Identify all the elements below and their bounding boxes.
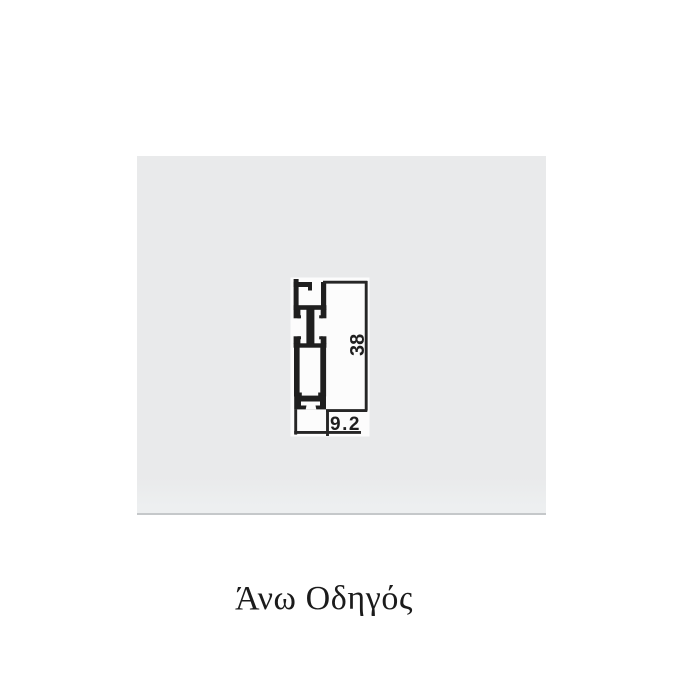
svg-text:9.2: 9.2: [330, 414, 361, 435]
svg-text:38: 38: [347, 334, 369, 356]
